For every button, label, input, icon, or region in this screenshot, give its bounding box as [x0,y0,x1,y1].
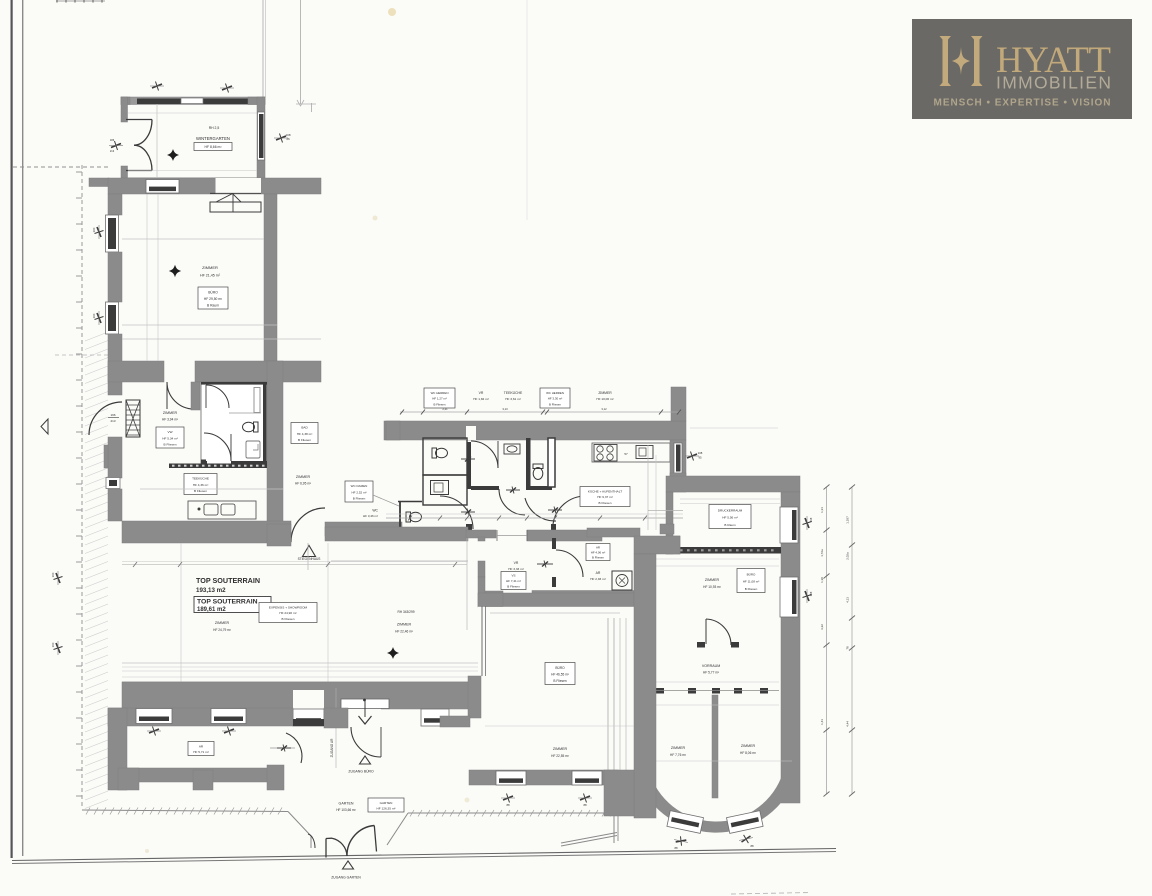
svg-text:3,13: 3,13 [502,407,508,411]
svg-text:B Fliesen: B Fliesen [507,584,520,588]
svg-text:1,187: 1,187 [846,516,850,524]
svg-text:B Fliesen: B Fliesen [282,617,295,621]
svg-text:HF 10,93 m²: HF 10,93 m² [703,585,721,589]
svg-text:HF 22,46 m²: HF 22,46 m² [395,630,413,634]
svg-text:HF 3,30 m²: HF 3,30 m² [548,397,562,401]
svg-text:4,13: 4,13 [846,597,850,603]
svg-text:108: 108 [809,517,813,522]
svg-text:HF 11,08 m²: HF 11,08 m² [743,580,759,584]
svg-text:B Fliesen: B Fliesen [433,403,445,407]
svg-text:HF 3,46 m²: HF 3,46 m² [363,514,378,518]
svg-text:WINTERGARTEN: WINTERGARTEN [196,136,230,141]
svg-text:VR: VR [479,391,484,395]
svg-text:AR: AR [596,545,600,549]
svg-text:VS: VS [511,574,515,578]
svg-text:WC: WC [372,509,378,513]
svg-text:4,44: 4,44 [846,721,850,727]
svg-text:78: 78 [846,646,850,650]
svg-text:DRUCKERRAUM: DRUCKERRAUM [718,508,743,512]
svg-text:108: 108 [809,591,813,596]
svg-text:BAD: BAD [301,426,308,430]
svg-text:VW: VW [168,430,173,434]
svg-text:186: 186 [110,138,115,142]
svg-text:HF 24,79 m²: HF 24,79 m² [213,628,231,632]
svg-text:ZIMMER: ZIMMER [215,621,230,625]
svg-text:HF 8,66 m²: HF 8,66 m² [205,145,223,149]
svg-text:MENSCH • EXPERTISE • VISION: MENSCH • EXPERTISE • VISION [934,98,1111,109]
svg-text:100: 100 [51,572,55,577]
svg-text:57: 57 [624,452,628,456]
svg-text:HF 2,93 m²: HF 2,93 m² [590,577,605,581]
svg-text:HF 7,41 m²: HF 7,41 m² [506,579,521,583]
svg-text:HF 10,06 m²: HF 10,06 m² [596,397,613,401]
svg-text:B Fliesen: B Fliesen [164,443,177,447]
svg-text:AR: AR [199,744,204,748]
svg-text:RH 343/299: RH 343/299 [397,610,414,614]
svg-text:HF 5,71 m²: HF 5,71 m² [193,750,208,754]
svg-text:GARTEN: GARTEN [339,802,354,806]
svg-text:HF 4,36 m²: HF 4,36 m² [193,483,208,487]
svg-text:WC HERREN: WC HERREN [546,391,564,395]
svg-text:AR: AR [596,571,601,575]
svg-text:HF 46,55 m²: HF 46,55 m² [551,672,569,676]
svg-text:ZUGANG BÜRO: ZUGANG BÜRO [348,770,374,774]
svg-text:B Fliesen: B Fliesen [592,556,604,560]
svg-text:HF 6,95 m²: HF 6,95 m² [295,482,311,486]
svg-text:26: 26 [286,137,290,141]
svg-text:ZIMMER: ZIMMER [598,391,612,395]
svg-text:HF 3,94 m²: HF 3,94 m² [162,418,178,422]
svg-text:HF 24,90 m²: HF 24,90 m² [279,611,296,615]
svg-text:ZIMMER: ZIMMER [553,747,568,751]
svg-text:2,21: 2,21 [442,407,448,411]
svg-text:ZUGANG AR: ZUGANG AR [330,738,334,757]
svg-text:1,41: 1,41 [820,719,824,725]
svg-text:ZIMMER: ZIMMER [202,265,218,270]
svg-text:HF 9,37 m²: HF 9,37 m² [597,495,612,499]
svg-text:TEEKÜCHE: TEEKÜCHE [192,477,209,481]
svg-text:213: 213 [110,419,115,423]
svg-text:B Fliesen: B Fliesen [353,497,366,501]
svg-text:189,61 m2: 189,61 m2 [197,607,226,613]
svg-text:ZIMMER: ZIMMER [741,744,756,748]
svg-text:3,22: 3,22 [820,624,824,630]
svg-text:HF 22,55 m²: HF 22,55 m² [551,754,569,758]
svg-text:KÜCHE + AUFENTHALT: KÜCHE + AUFENTHALT [588,489,622,493]
svg-text:213: 213 [110,149,115,153]
svg-text:95: 95 [698,456,702,460]
svg-text:B Fliesen: B Fliesen [549,403,561,407]
svg-text:HF 2,52 m²: HF 2,52 m² [351,490,366,494]
svg-text:193,13 m2: 193,13 m2 [196,587,226,594]
svg-text:HF 5,34 m²: HF 5,34 m² [162,436,177,440]
svg-text:BÜRO: BÜRO [555,666,565,670]
svg-text:STIEGENHAUS: STIEGENHAUS [298,557,321,561]
svg-text:TOP SOUTERRAIN: TOP SOUTERRAIN [197,599,258,606]
svg-text:BÜRO: BÜRO [747,572,756,576]
svg-text:ZUGANG GARTEN: ZUGANG GARTEN [331,876,361,880]
svg-text:1,72a: 1,72a [820,549,824,557]
svg-text:88: 88 [674,846,678,850]
svg-text:B Fliesen: B Fliesen [599,501,612,505]
svg-text:196: 196 [110,413,115,417]
svg-text:HF 7,76 m²: HF 7,76 m² [670,753,686,757]
svg-text:HF 4,06 m²: HF 4,06 m² [591,550,605,554]
svg-text:88: 88 [506,803,510,807]
svg-text:HF 5,77 m²: HF 5,77 m² [703,671,719,675]
svg-text:B Raum: B Raum [207,304,219,308]
svg-text:B Fliesen: B Fliesen [745,587,758,591]
svg-text:HF 8,06 m²: HF 8,06 m² [740,751,756,755]
svg-text:EXPENSIS + SHOWROOM: EXPENSIS + SHOWROOM [269,605,308,609]
svg-text:100: 100 [92,227,96,232]
svg-text:BÜRO: BÜRO [208,290,218,294]
svg-text:ZIMMER: ZIMMER [163,411,178,415]
svg-text:B Fliesen: B Fliesen [298,438,311,442]
svg-text:VR: VR [514,561,519,565]
svg-text:HF 3,61 m²: HF 3,61 m² [505,397,520,401]
svg-text:B Fliesen: B Fliesen [553,679,567,683]
svg-text:88: 88 [583,803,587,807]
svg-text:GARTEN: GARTEN [380,801,393,805]
svg-text:HF 5,56 m²: HF 5,56 m² [722,516,737,520]
svg-text:2,02a: 2,02a [846,552,850,560]
svg-text:HF 1,84 m²: HF 1,84 m² [473,397,488,401]
svg-text:ZIMMER: ZIMMER [296,475,311,479]
svg-text:HF 29,50 m²: HF 29,50 m² [204,297,223,301]
svg-text:1,30: 1,30 [820,577,824,583]
svg-text:HF 126,35 m²: HF 126,35 m² [377,807,396,811]
svg-text:WC HERREN: WC HERREN [431,391,449,395]
svg-text:ZIMMER: ZIMMER [397,623,412,627]
svg-text:WC DAMEN: WC DAMEN [351,484,368,488]
svg-text:ZIMMER: ZIMMER [705,578,720,582]
svg-text:HF 21,45 m²: HF 21,45 m² [200,274,221,278]
svg-text:B Raum: B Raum [724,523,736,527]
svg-text:IMMOBILIEN: IMMOBILIEN [996,73,1111,93]
svg-text:VORRAUM: VORRAUM [702,664,720,668]
svg-text:TOP SOUTERRAIN: TOP SOUTERRAIN [196,576,260,585]
svg-text:HF 4,38 m²: HF 4,38 m² [297,432,312,436]
svg-text:HF 3,33 m²: HF 3,33 m² [508,567,523,571]
svg-text:88: 88 [750,844,754,848]
svg-text:ZIMMER: ZIMMER [671,746,686,750]
svg-text:3,12: 3,12 [601,407,607,411]
svg-text:100: 100 [51,642,55,647]
svg-text:HF 103,66 m²: HF 103,66 m² [336,808,356,812]
svg-text:100: 100 [92,313,96,318]
svg-text:HF 1,27 m²: HF 1,27 m² [432,397,446,401]
svg-text:RH 2,5: RH 2,5 [209,126,220,130]
svg-text:TEEKÜCHE: TEEKÜCHE [504,391,523,395]
svg-text:B Fliesen: B Fliesen [194,489,207,493]
svg-text:1,31: 1,31 [820,507,824,513]
svg-text:108: 108 [698,451,703,455]
